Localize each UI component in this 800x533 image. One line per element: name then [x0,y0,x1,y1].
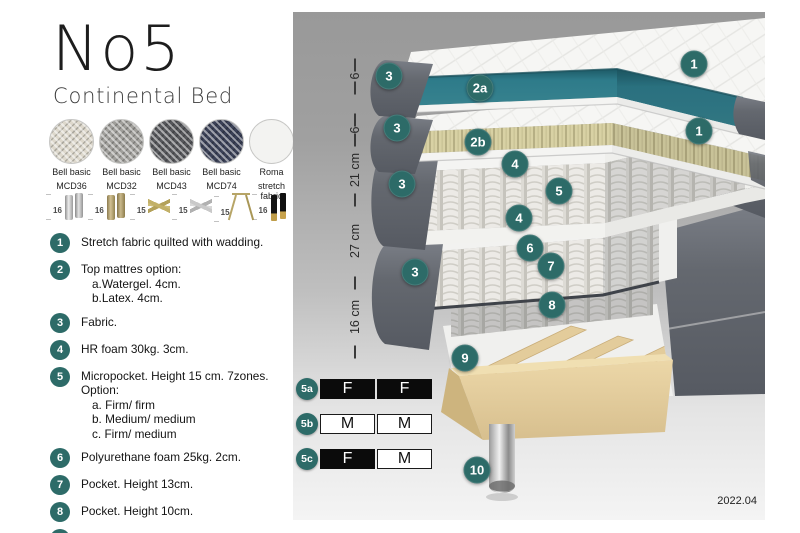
leg-icon [269,191,291,221]
firmness-row: 5c FM [296,448,432,470]
info-column: No5 Continental Bed Bell basic MCD36 Bel… [0,0,293,533]
feature-sub-item: a. Firm/ firm [92,398,288,413]
feature-number-badge: 2 [50,260,70,280]
feature-text: Micropocket. Height 15 cm. 7zones. Optio… [81,369,288,398]
callout-badge: 1 [681,51,708,78]
fabric-code: MCD32 [99,181,144,192]
fabric-code: MCD74 [199,181,244,192]
fabric-name: Bell basic [49,167,94,178]
ruler-tick [354,194,356,207]
firmness-cell: F [320,379,375,399]
leg-option: 15 [212,191,250,225]
fabric-swatch-item: Bell basic MCD74 [199,119,244,202]
feature-text-block: Stretch fabric quilted with wadding. [81,233,263,253]
firmness-cell: F [377,379,432,399]
feature-item: 9 Wood. [50,529,288,533]
leg-icon [232,193,250,225]
fabric-swatch-item: Roma stretch fabric [249,119,294,202]
leg-height-label: 15 [137,206,146,215]
leg-icon [148,191,170,221]
firmness-cells: FF [320,379,432,399]
leg-height-label: 15 [179,206,188,215]
callout-badge: 2a [467,75,494,102]
ruler-tick [354,346,356,359]
feature-sub-list: a. Firm/ firm b. Medium/ medium c. Firm/… [81,398,288,442]
callout-badge: 9 [452,345,479,372]
callout-badge: 3 [389,171,416,198]
product-subtitle: Continental Bed [53,84,233,108]
feature-item: 5 Micropocket. Height 15 cm. 7zones. Opt… [50,367,288,442]
feature-sub-item: a.Watergel. 4cm. [92,277,181,292]
feature-item: 1 Stretch fabric quilted with wadding. [50,233,288,253]
leg-divider-marks [88,194,93,220]
feature-text: Top mattres option: [81,262,181,277]
feature-number-badge: 3 [50,313,70,333]
leg-height-label: 16 [53,206,62,215]
callout-badge: 3 [402,259,429,286]
feature-number-badge: 9 [50,529,70,533]
fabric-swatch-circle [149,119,194,164]
leg-option: 16 [44,191,86,221]
feature-text-block: Fabric. [81,313,117,333]
fabric-name: Bell basic [99,167,144,178]
callout-badge: 3 [376,63,403,90]
callout-badge: 5 [546,178,573,205]
firmness-table: 5a FF 5b MM 5c FM [296,378,432,470]
firmness-cells: MM [320,414,432,434]
firmness-row-badge: 5a [296,378,318,400]
callout-badge: 2b [465,129,492,156]
feature-item: 2 Top mattres option: a.Watergel. 4cm. b… [50,260,288,306]
version-label: 2022.04 [717,495,757,507]
fabric-name: Bell basic [199,167,244,178]
callout-badge: 3 [384,115,411,142]
fabric-swatch-circle [99,119,144,164]
feature-text-block: Wood. [81,529,115,533]
feature-text-block: Polyurethane foam 25kg. 2cm. [81,448,241,468]
feature-text: HR foam 30kg. 3cm. [81,342,189,357]
feature-text: Pocket. Height 10cm. [81,504,193,519]
leg-options-row: 16 16 15 15 [44,191,291,225]
feature-text: Stretch fabric quilted with wadding. [81,235,263,250]
dimension-label: 16 cm [348,300,362,334]
fabric-swatch-circle [199,119,244,164]
leg-option: 15 [128,191,170,221]
feature-sub-item: b. Medium/ medium [92,412,288,427]
fabric-code: MCD36 [49,181,94,192]
feature-item: 6 Polyurethane foam 25kg. 2cm. [50,448,288,468]
firmness-cell: M [377,414,432,434]
fabric-swatch-item: Bell basic MCD43 [149,119,194,202]
dimension-label: 6 [348,73,362,80]
ruler-tick [354,277,356,290]
fabric-name: Bell basic [149,167,194,178]
feature-text-block: Pocket. Height 10cm. [81,502,193,522]
callout-badge: 8 [539,292,566,319]
dimension-label: 21 cm [348,153,362,187]
leg-divider-marks [172,194,177,220]
feature-text: Fabric. [81,315,117,330]
ruler-tick [354,134,356,147]
feature-number-badge: 4 [50,340,70,360]
leg-height-label: 16 [259,206,268,215]
callout-badge: 10 [464,457,491,484]
feature-text: Pocket. Height 13cm. [81,477,193,492]
callout-badge: 4 [506,205,533,232]
feature-number-badge: 8 [50,502,70,522]
feature-item: 8 Pocket. Height 10cm. [50,502,288,522]
feature-item: 7 Pocket. Height 13cm. [50,475,288,495]
feature-sub-item: c. Firm/ medium [92,427,288,442]
firmness-cell: M [320,414,375,434]
fabric-swatch-circle [249,119,294,164]
fabric-name: Roma [249,167,294,178]
firmness-row-badge: 5b [296,413,318,435]
feature-text-block: HR foam 30kg. 3cm. [81,340,189,360]
leg-divider-marks [46,194,51,220]
diagram-panel: 6621 cm27 cm16 cm 12a312b345346738910 5a… [293,12,765,520]
callout-badge: 1 [686,118,713,145]
leg-option: 16 [86,191,128,221]
fabric-swatch-item: Bell basic MCD36 [49,119,94,202]
callout-badge: 4 [502,151,529,178]
feature-number-badge: 5 [50,367,70,387]
fabric-code: MCD43 [149,181,194,192]
dimension-label: 27 cm [348,224,362,258]
feature-number-badge: 7 [50,475,70,495]
leg-height-label: 16 [95,206,104,215]
fabric-swatch-circle [49,119,94,164]
ruler-tick [354,82,356,95]
leg-divider-marks [214,196,219,222]
product-title: No5 [52,18,182,80]
fabric-swatch-row: Bell basic MCD36 Bell basic MCD32 Bell b… [49,119,294,202]
dimension-label: 6 [348,127,362,134]
firmness-cell: F [320,449,375,469]
feature-text-block: Pocket. Height 13cm. [81,475,193,495]
callout-badge: 7 [538,253,565,280]
feature-text-block: Micropocket. Height 15 cm. 7zones. Optio… [81,367,288,442]
feature-text-block: Top mattres option: a.Watergel. 4cm. b.L… [81,260,181,306]
firmness-row-badge: 5c [296,448,318,470]
feature-item: 4 HR foam 30kg. 3cm. [50,340,288,360]
firmness-cells: FM [320,449,432,469]
leg-icon [190,191,212,221]
feature-number-badge: 6 [50,448,70,468]
feature-text: Polyurethane foam 25kg. 2cm. [81,450,241,465]
feature-list: 1 Stretch fabric quilted with wadding. 2… [50,233,288,533]
ruler-tick [354,114,356,127]
firmness-row: 5a FF [296,378,432,400]
leg-divider-marks [130,194,135,220]
feature-item: 3 Fabric. [50,313,288,333]
infographic-page: No5 Continental Bed Bell basic MCD36 Bel… [0,0,800,533]
fabric-swatch-item: Bell basic MCD32 [99,119,144,202]
feature-number-badge: 1 [50,233,70,253]
ruler-tick [354,59,356,72]
leg-option: 15 [170,191,212,221]
leg-option: 16 [250,191,292,221]
feature-sub-list: a.Watergel. 4cm. b.Latex. 4cm. [81,277,181,306]
fabric-corner-lower [372,242,443,350]
feature-sub-item: b.Latex. 4cm. [92,291,181,306]
firmness-row: 5b MM [296,413,432,435]
leg-icon [106,191,128,221]
leg-icon [64,191,86,221]
firmness-cell: M [377,449,432,469]
